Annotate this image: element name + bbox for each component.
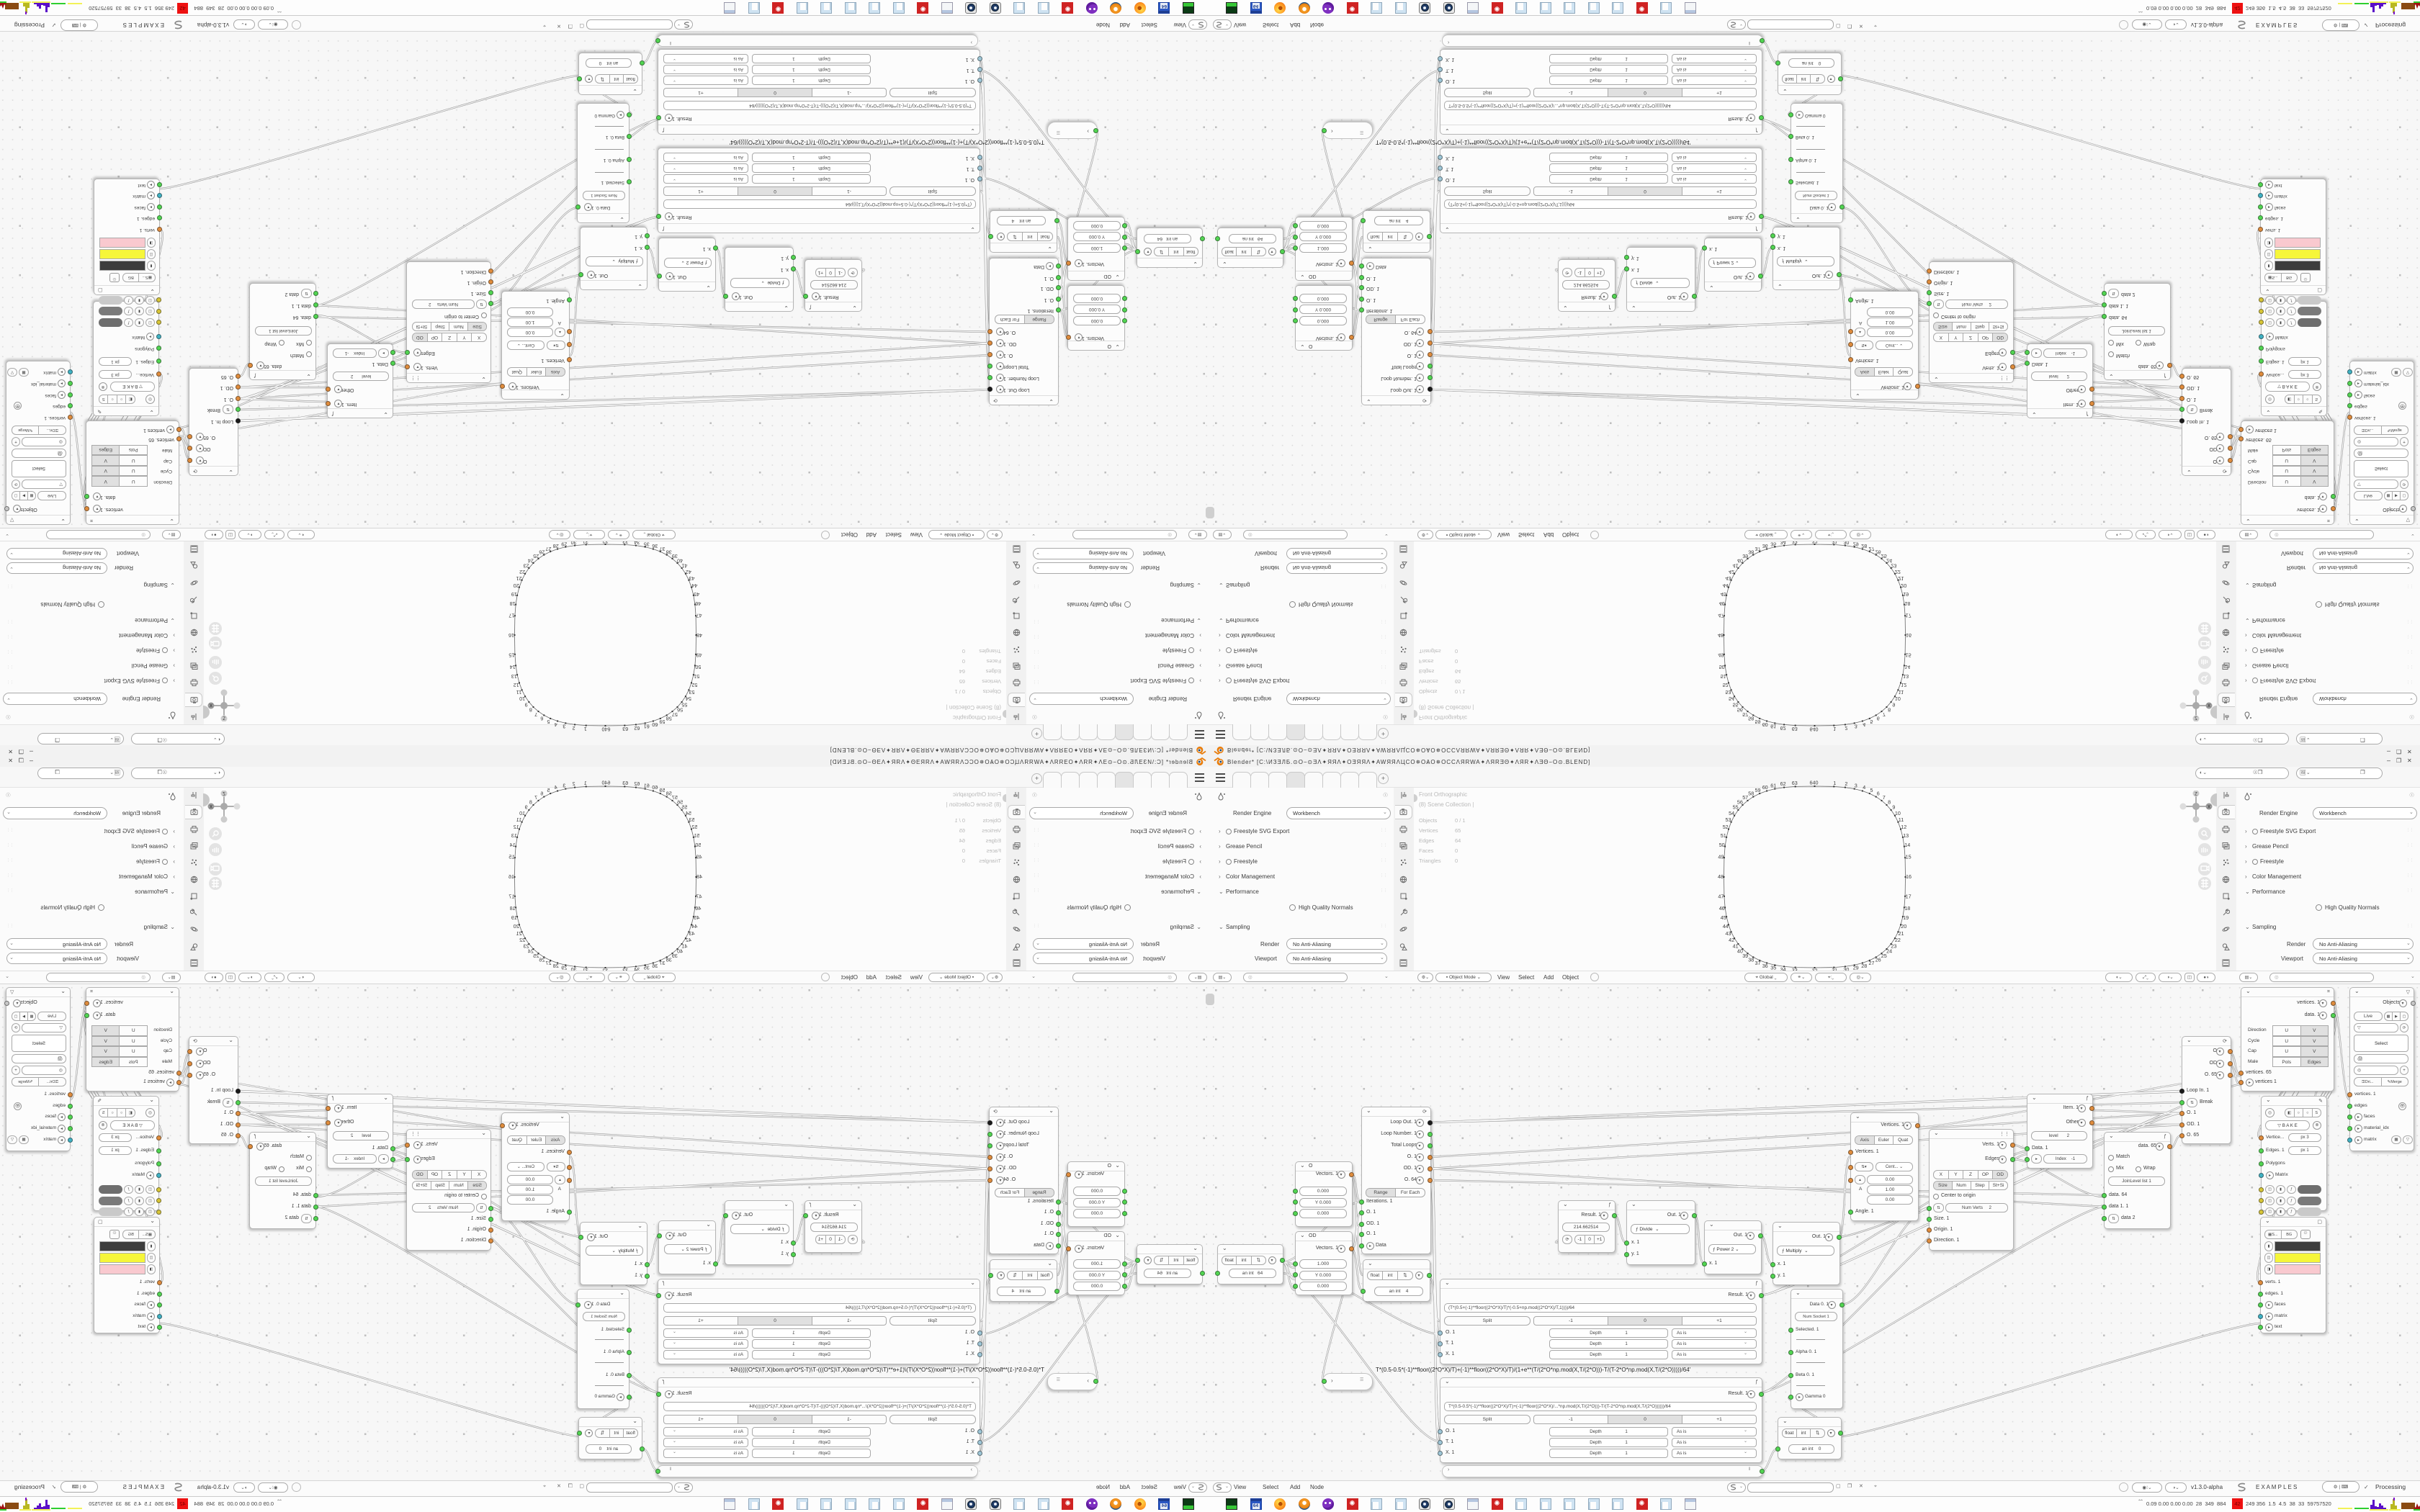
svg-text:12: 12 — [514, 824, 519, 830]
svg-text:17: 17 — [508, 612, 514, 618]
svg-text:26: 26 — [1875, 956, 1881, 963]
svg-text:25: 25 — [1881, 553, 1887, 559]
svg-text:6: 6 — [540, 791, 543, 797]
svg-text:36: 36 — [1762, 963, 1768, 969]
svg-text:8: 8 — [529, 707, 532, 714]
svg-text:37: 37 — [660, 546, 665, 552]
svg-text:58: 58 — [1748, 791, 1754, 797]
svg-text:36: 36 — [652, 963, 658, 969]
svg-text:0: 0 — [1816, 726, 1819, 733]
svg-text:4: 4 — [1863, 721, 1865, 728]
svg-text:21: 21 — [516, 575, 522, 582]
svg-text:8: 8 — [1888, 798, 1891, 805]
svg-text:28: 28 — [553, 963, 559, 969]
svg-text:21: 21 — [516, 930, 522, 937]
svg-text:60: 60 — [1762, 721, 1768, 728]
svg-text:26: 26 — [539, 549, 544, 556]
svg-text:64: 64 — [1810, 780, 1816, 786]
svg-text:59: 59 — [660, 719, 665, 725]
svg-text:18: 18 — [510, 905, 516, 912]
svg-text:16: 16 — [508, 632, 514, 639]
svg-text:3: 3 — [563, 782, 565, 788]
svg-text:44: 44 — [691, 582, 697, 589]
svg-text:5: 5 — [1870, 719, 1873, 725]
svg-text:25: 25 — [533, 953, 539, 959]
svg-text:6: 6 — [1877, 715, 1880, 721]
svg-text:15: 15 — [1906, 652, 1912, 659]
svg-text:50: 50 — [695, 664, 701, 670]
svg-text:26: 26 — [539, 956, 544, 963]
svg-text:15: 15 — [1906, 853, 1912, 860]
svg-text:9: 9 — [525, 804, 528, 811]
svg-text:14: 14 — [1904, 664, 1910, 670]
svg-text:42: 42 — [1729, 937, 1734, 943]
svg-text:62: 62 — [1780, 780, 1786, 787]
svg-text:49: 49 — [1718, 853, 1724, 860]
svg-text:16: 16 — [508, 873, 514, 880]
svg-text:63: 63 — [622, 726, 628, 732]
svg-text:35: 35 — [1770, 541, 1776, 547]
svg-text:28: 28 — [553, 543, 559, 549]
svg-text:3: 3 — [1855, 724, 1857, 730]
svg-text:43: 43 — [689, 930, 695, 937]
svg-text:19: 19 — [511, 591, 517, 598]
svg-text:59: 59 — [660, 787, 665, 793]
svg-text:63: 63 — [1792, 726, 1798, 732]
svg-text:36: 36 — [652, 543, 658, 549]
svg-text:2: 2 — [573, 780, 575, 787]
svg-text:24: 24 — [1886, 948, 1892, 955]
svg-text:41: 41 — [681, 942, 687, 949]
svg-text:38: 38 — [1748, 956, 1754, 963]
svg-text:37: 37 — [1755, 546, 1761, 552]
svg-text:7: 7 — [534, 711, 537, 718]
svg-text:51: 51 — [1721, 832, 1726, 839]
svg-text:X: X — [210, 806, 212, 810]
svg-text:57: 57 — [1742, 794, 1748, 801]
svg-text:44: 44 — [1723, 582, 1729, 589]
svg-text:61: 61 — [1770, 724, 1776, 730]
svg-text:15: 15 — [508, 652, 514, 659]
svg-text:8: 8 — [1888, 707, 1891, 714]
svg-text:39: 39 — [1742, 953, 1748, 959]
svg-text:48: 48 — [1718, 873, 1724, 880]
svg-text:57: 57 — [1742, 711, 1748, 718]
svg-text:47: 47 — [1718, 894, 1724, 900]
svg-text:3: 3 — [1855, 782, 1857, 788]
svg-text:37: 37 — [660, 960, 665, 966]
svg-text:11: 11 — [516, 816, 521, 823]
svg-text:0: 0 — [1816, 780, 1819, 786]
svg-text:1: 1 — [1833, 780, 1836, 786]
svg-text:3: 3 — [563, 724, 565, 730]
svg-text:44: 44 — [1723, 923, 1729, 930]
svg-text:50: 50 — [695, 842, 701, 848]
svg-text:48: 48 — [696, 632, 702, 639]
svg-text:13: 13 — [511, 832, 517, 839]
svg-text:14: 14 — [510, 664, 516, 670]
svg-text:54: 54 — [1729, 810, 1734, 816]
svg-text:61: 61 — [644, 782, 650, 788]
svg-text:60: 60 — [652, 784, 658, 791]
svg-text:Z: Z — [223, 793, 225, 797]
svg-text:51: 51 — [1721, 673, 1726, 680]
svg-text:20: 20 — [514, 582, 519, 589]
svg-text:14: 14 — [510, 842, 516, 848]
svg-text:43: 43 — [1726, 575, 1731, 582]
svg-text:7: 7 — [534, 794, 537, 801]
svg-text:12: 12 — [1901, 824, 1906, 830]
svg-text:49: 49 — [1718, 652, 1724, 659]
svg-text:Z: Z — [2195, 716, 2197, 720]
svg-text:12: 12 — [1901, 682, 1906, 688]
svg-text:26: 26 — [1875, 549, 1881, 556]
svg-text:56: 56 — [677, 798, 683, 805]
svg-text:63: 63 — [1792, 780, 1798, 786]
svg-text:18: 18 — [510, 600, 516, 607]
svg-text:49: 49 — [696, 853, 702, 860]
svg-text:43: 43 — [689, 575, 695, 582]
svg-text:19: 19 — [1903, 914, 1909, 921]
svg-text:52: 52 — [1723, 824, 1729, 830]
svg-text:50: 50 — [1719, 842, 1725, 848]
svg-text:39: 39 — [1742, 553, 1748, 559]
svg-text:45: 45 — [694, 591, 699, 598]
svg-text:46: 46 — [1719, 600, 1725, 607]
svg-text:61: 61 — [1770, 782, 1776, 788]
svg-text:53: 53 — [689, 689, 695, 696]
svg-text:51: 51 — [694, 832, 699, 839]
svg-text:1: 1 — [1833, 726, 1836, 732]
svg-text:X: X — [2208, 806, 2210, 810]
svg-text:20: 20 — [1901, 923, 1906, 930]
svg-text:59: 59 — [1755, 787, 1761, 793]
svg-text:4: 4 — [555, 784, 557, 791]
svg-text:53: 53 — [689, 816, 695, 823]
svg-text:61: 61 — [644, 724, 650, 730]
svg-text:42: 42 — [686, 569, 691, 575]
svg-text:13: 13 — [1903, 832, 1909, 839]
svg-text:1: 1 — [584, 780, 587, 786]
svg-text:21: 21 — [1899, 930, 1904, 937]
svg-text:56: 56 — [677, 707, 683, 714]
svg-text:47: 47 — [1718, 612, 1724, 618]
svg-text:6: 6 — [1877, 791, 1880, 797]
svg-text:38: 38 — [666, 549, 672, 556]
svg-text:48: 48 — [696, 873, 702, 880]
svg-text:25: 25 — [1881, 953, 1887, 959]
svg-text:8: 8 — [529, 798, 532, 805]
svg-text:62: 62 — [1780, 725, 1786, 732]
svg-text:10: 10 — [519, 810, 525, 816]
svg-text:5: 5 — [547, 719, 550, 725]
svg-text:4: 4 — [1863, 784, 1865, 791]
svg-text:2: 2 — [573, 725, 575, 732]
svg-text:46: 46 — [695, 600, 701, 607]
svg-text:42: 42 — [686, 937, 691, 943]
svg-text:44: 44 — [691, 923, 697, 930]
svg-text:X: X — [210, 703, 212, 707]
svg-text:52: 52 — [691, 824, 697, 830]
svg-text:53: 53 — [1726, 816, 1731, 823]
svg-text:24: 24 — [1886, 557, 1892, 564]
svg-text:43: 43 — [1726, 930, 1731, 937]
svg-text:2: 2 — [1845, 780, 1847, 787]
svg-text:60: 60 — [652, 721, 658, 728]
svg-text:27: 27 — [546, 546, 552, 552]
svg-text:9: 9 — [525, 701, 528, 708]
svg-text:10: 10 — [519, 696, 525, 702]
svg-text:27: 27 — [1869, 960, 1875, 966]
svg-text:21: 21 — [1899, 575, 1904, 582]
svg-text:7: 7 — [1883, 711, 1886, 718]
svg-text:38: 38 — [1748, 549, 1754, 556]
svg-text:17: 17 — [1906, 612, 1912, 618]
svg-text:64: 64 — [1810, 726, 1816, 733]
svg-text:45: 45 — [1721, 591, 1726, 598]
svg-text:25: 25 — [533, 553, 539, 559]
svg-text:28: 28 — [1861, 963, 1867, 969]
svg-text:16: 16 — [1906, 632, 1912, 639]
svg-text:11: 11 — [1899, 816, 1904, 823]
svg-text:4: 4 — [555, 721, 557, 728]
svg-text:15: 15 — [508, 853, 514, 860]
svg-text:51: 51 — [694, 673, 699, 680]
svg-text:64: 64 — [605, 726, 611, 733]
svg-text:37: 37 — [1755, 960, 1761, 966]
svg-text:7: 7 — [1883, 794, 1886, 801]
svg-text:42: 42 — [1729, 569, 1734, 575]
svg-text:36: 36 — [1762, 543, 1768, 549]
svg-text:22: 22 — [1895, 569, 1901, 575]
svg-text:62: 62 — [634, 780, 640, 787]
svg-text:29: 29 — [1853, 541, 1859, 547]
svg-text:22: 22 — [519, 569, 525, 575]
svg-text:57: 57 — [672, 794, 678, 801]
svg-text:X: X — [2208, 703, 2210, 707]
svg-text:54: 54 — [686, 810, 691, 816]
svg-text:45: 45 — [1721, 914, 1726, 921]
svg-text:17: 17 — [1906, 894, 1912, 900]
svg-text:2: 2 — [1845, 725, 1847, 732]
svg-text:18: 18 — [1904, 600, 1910, 607]
svg-text:20: 20 — [1901, 582, 1906, 589]
svg-text:60: 60 — [1762, 784, 1768, 791]
svg-text:59: 59 — [1755, 719, 1761, 725]
svg-text:Z: Z — [2195, 793, 2197, 797]
svg-text:11: 11 — [1899, 689, 1904, 696]
svg-text:19: 19 — [511, 914, 517, 921]
svg-text:17: 17 — [508, 894, 514, 900]
svg-text:50: 50 — [1719, 664, 1725, 670]
svg-text:49: 49 — [696, 652, 702, 659]
svg-text:58: 58 — [666, 791, 672, 797]
svg-text:20: 20 — [514, 923, 519, 930]
svg-text:35: 35 — [644, 541, 650, 547]
svg-text:11: 11 — [516, 689, 521, 696]
svg-text:Z: Z — [223, 716, 225, 720]
svg-text:5: 5 — [1870, 787, 1873, 793]
svg-text:47: 47 — [696, 612, 702, 618]
svg-text:64: 64 — [605, 780, 611, 786]
svg-text:28: 28 — [1861, 543, 1867, 549]
svg-text:27: 27 — [546, 960, 552, 966]
svg-text:29: 29 — [561, 541, 567, 547]
svg-text:13: 13 — [1903, 673, 1909, 680]
svg-text:10: 10 — [1895, 696, 1901, 702]
svg-text:9: 9 — [1892, 701, 1895, 708]
svg-text:62: 62 — [634, 725, 640, 732]
svg-text:10: 10 — [1895, 810, 1901, 816]
svg-text:38: 38 — [666, 956, 672, 963]
svg-text:27: 27 — [1869, 546, 1875, 552]
svg-text:57: 57 — [672, 711, 678, 718]
svg-text:12: 12 — [514, 682, 519, 688]
svg-text:5: 5 — [547, 787, 550, 793]
svg-text:46: 46 — [1719, 905, 1725, 912]
svg-text:58: 58 — [666, 715, 672, 721]
svg-text:52: 52 — [1723, 682, 1729, 688]
svg-text:1: 1 — [584, 726, 587, 732]
svg-text:18: 18 — [1904, 905, 1910, 912]
svg-text:13: 13 — [511, 673, 517, 680]
svg-text:53: 53 — [1726, 689, 1731, 696]
svg-text:46: 46 — [695, 905, 701, 912]
svg-text:16: 16 — [1906, 873, 1912, 880]
svg-text:14: 14 — [1904, 842, 1910, 848]
svg-text:52: 52 — [691, 682, 697, 688]
svg-text:6: 6 — [540, 715, 543, 721]
svg-text:45: 45 — [694, 914, 699, 921]
svg-text:48: 48 — [1718, 632, 1724, 639]
svg-text:47: 47 — [696, 894, 702, 900]
svg-text:63: 63 — [622, 780, 628, 786]
svg-text:58: 58 — [1748, 715, 1754, 721]
svg-text:41: 41 — [1733, 942, 1739, 949]
svg-text:19: 19 — [1903, 591, 1909, 598]
